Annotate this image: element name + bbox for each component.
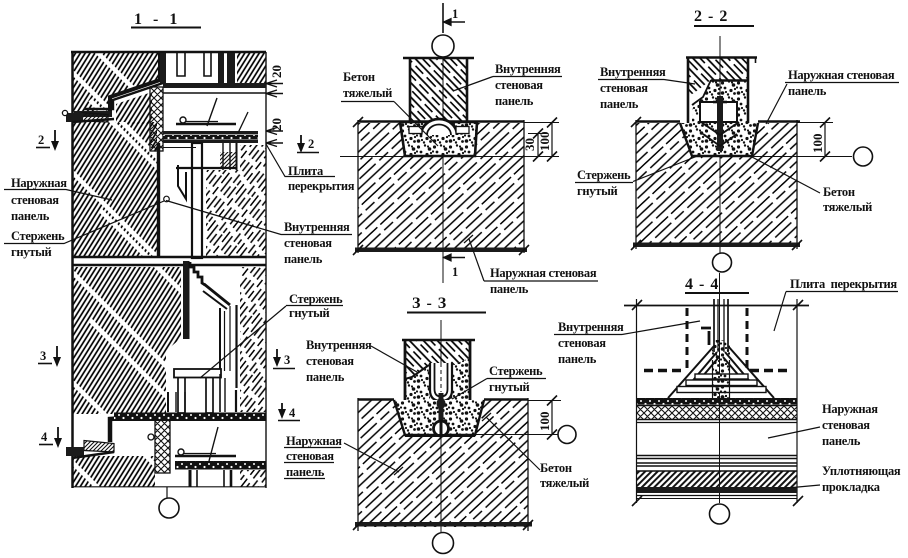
svg-text:тяжелый: тяжелый bbox=[823, 200, 872, 214]
svg-text:панель: панель bbox=[600, 97, 639, 111]
svg-text:100: 100 bbox=[537, 132, 552, 152]
svg-text:1: 1 bbox=[452, 7, 458, 21]
svg-text:стеновая: стеновая bbox=[306, 354, 354, 368]
svg-text:тяжелый: тяжелый bbox=[540, 476, 589, 490]
svg-text:Уплотняющая: Уплотняющая bbox=[822, 464, 901, 478]
svg-text:Стержень: Стержень bbox=[577, 168, 631, 182]
svg-text:Внутренняя: Внутренняя bbox=[306, 338, 372, 352]
svg-text:З - З: З - З bbox=[412, 295, 447, 312]
svg-text:перекрытия: перекрытия bbox=[288, 179, 355, 193]
svg-text:стеновая: стеновая bbox=[558, 336, 606, 350]
svg-text:4 - 4: 4 - 4 bbox=[685, 276, 719, 293]
svg-text:Бетон: Бетон bbox=[343, 70, 375, 84]
svg-text:20: 20 bbox=[269, 118, 284, 131]
svg-text:панель: панель bbox=[788, 84, 827, 98]
svg-text:100: 100 bbox=[810, 134, 825, 154]
svg-text:Плита перекрытия: Плита перекрытия bbox=[790, 277, 897, 291]
svg-text:панель: панель bbox=[558, 352, 597, 366]
svg-text:прокладка: прокладка bbox=[822, 480, 881, 494]
svg-text:Стержень: Стержень bbox=[489, 364, 543, 378]
svg-text:гнутый: гнутый bbox=[489, 380, 530, 394]
svg-text:4: 4 bbox=[289, 406, 296, 420]
svg-text:стеновая: стеновая bbox=[600, 81, 648, 95]
svg-text:панель: панель bbox=[490, 282, 529, 296]
svg-text:стеновая: стеновая bbox=[495, 78, 543, 92]
svg-text:панель: панель bbox=[11, 209, 50, 223]
svg-text:4: 4 bbox=[41, 430, 48, 444]
svg-text:гнутый: гнутый bbox=[11, 245, 52, 259]
svg-text:2: 2 bbox=[38, 133, 44, 147]
svg-text:панель: панель bbox=[284, 252, 323, 266]
svg-text:стеновая: стеновая bbox=[284, 236, 332, 250]
svg-text:2 - 2: 2 - 2 bbox=[694, 8, 728, 25]
svg-text:Внутренняя: Внутренняя bbox=[600, 65, 666, 79]
svg-text:1: 1 bbox=[452, 265, 458, 279]
svg-text:стеновая: стеновая bbox=[286, 449, 334, 463]
svg-text:Наружная стеновая: Наружная стеновая bbox=[490, 266, 597, 280]
svg-text:гнутый: гнутый bbox=[289, 306, 330, 320]
svg-text:Бетон: Бетон bbox=[540, 461, 572, 475]
svg-text:30: 30 bbox=[522, 138, 537, 151]
svg-text:гнутый: гнутый bbox=[577, 184, 618, 198]
svg-text:панель: панель bbox=[495, 94, 534, 108]
svg-text:Внутренняя: Внутренняя bbox=[558, 320, 624, 334]
svg-text:Стержень: Стержень bbox=[11, 229, 65, 243]
svg-text:Стержень: Стержень bbox=[289, 292, 343, 306]
svg-text:Наружная: Наружная bbox=[11, 176, 67, 190]
svg-text:Наружная: Наружная bbox=[286, 434, 342, 448]
svg-text:3: 3 bbox=[284, 353, 290, 367]
svg-text:панель: панель bbox=[822, 434, 861, 448]
svg-text:2: 2 bbox=[308, 137, 314, 151]
svg-text:20: 20 bbox=[269, 65, 284, 78]
svg-text:стеновая: стеновая bbox=[822, 418, 870, 432]
svg-text:тяжелый: тяжелый bbox=[343, 86, 392, 100]
svg-text:Внутренняя: Внутренняя bbox=[284, 220, 350, 234]
svg-text:3: 3 bbox=[40, 349, 46, 363]
svg-text:панель: панель bbox=[306, 370, 345, 384]
svg-text:стеновая: стеновая bbox=[11, 193, 59, 207]
svg-text:Бетон: Бетон bbox=[823, 185, 855, 199]
svg-text:Наружная стеновая: Наружная стеновая bbox=[788, 68, 895, 82]
svg-text:Внутренняя: Внутренняя bbox=[495, 62, 561, 76]
svg-text:100: 100 bbox=[537, 412, 552, 432]
svg-text:Наружная: Наружная bbox=[822, 402, 878, 416]
svg-text:панель: панель bbox=[286, 465, 325, 479]
svg-text:1 - 1: 1 - 1 bbox=[134, 11, 178, 28]
